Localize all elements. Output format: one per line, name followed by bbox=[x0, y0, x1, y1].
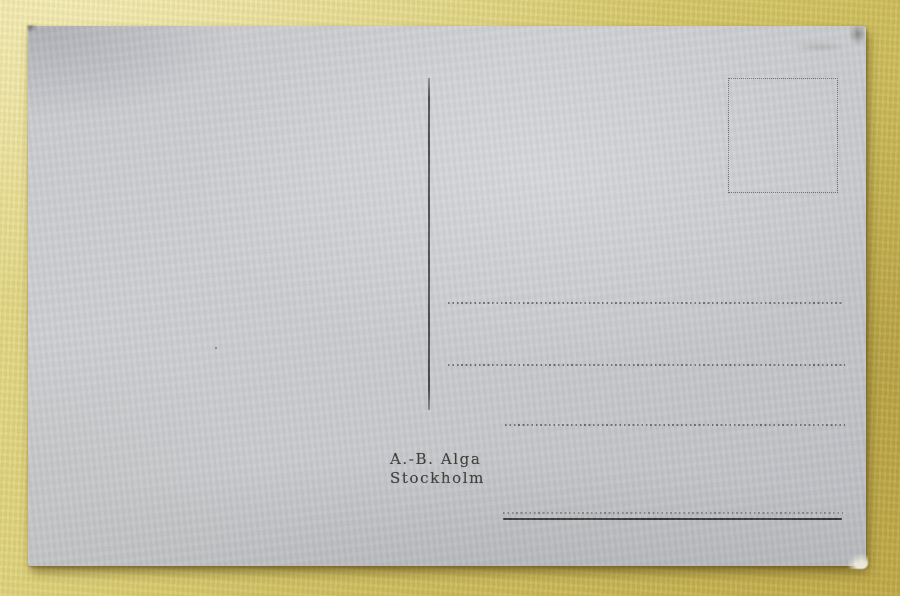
postcard-back: A.-B. Alga Stockholm bbox=[28, 26, 866, 566]
paper-speck bbox=[215, 347, 217, 349]
publisher-city: Stockholm bbox=[390, 469, 485, 488]
pencil-smudge bbox=[788, 42, 852, 51]
bottom-rule-line bbox=[503, 518, 842, 520]
corner-nick bbox=[27, 25, 41, 35]
publisher-name: A.-B. Alga bbox=[390, 450, 485, 469]
photo-background: A.-B. Alga Stockholm bbox=[0, 0, 900, 596]
publisher-imprint: A.-B. Alga Stockholm bbox=[390, 450, 485, 488]
address-line-4-dotted bbox=[503, 512, 843, 514]
address-line-2 bbox=[448, 364, 845, 366]
message-address-divider-line bbox=[428, 78, 430, 410]
worn-corner bbox=[842, 549, 868, 569]
address-line-3 bbox=[505, 424, 845, 426]
stamp-box bbox=[728, 78, 838, 193]
address-line-1 bbox=[448, 302, 843, 304]
